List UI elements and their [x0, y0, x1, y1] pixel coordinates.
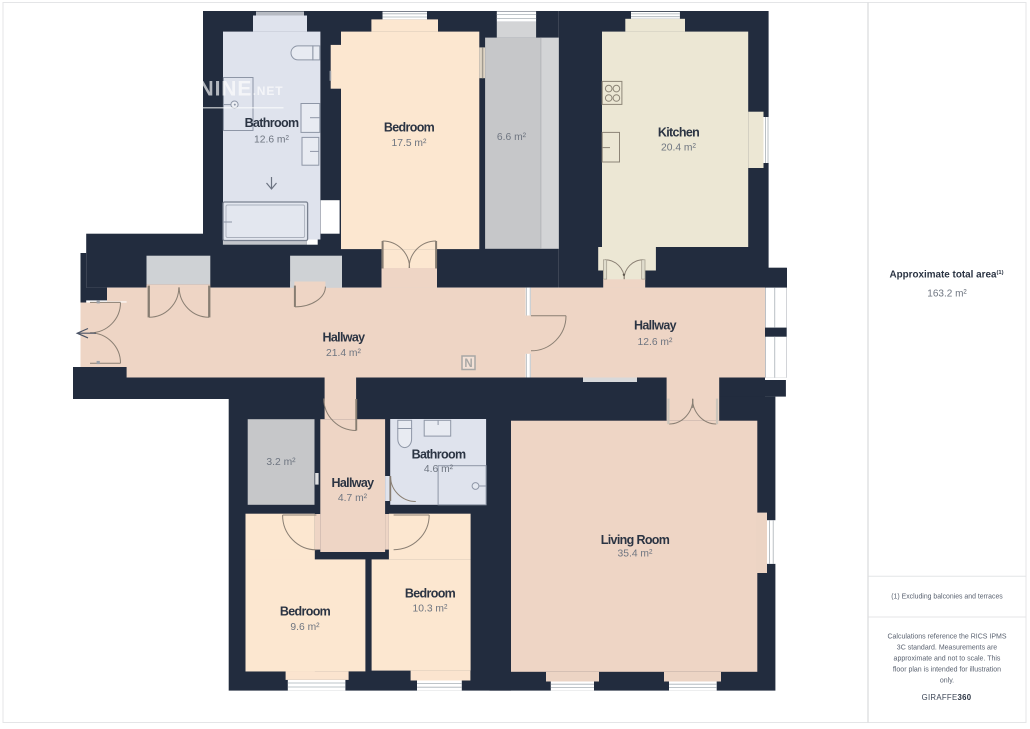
- svg-text:3.2 m²: 3.2 m²: [266, 457, 296, 468]
- svg-text:12.6 m²: 12.6 m²: [254, 135, 289, 146]
- svg-text:10.3 m²: 10.3 m²: [413, 604, 448, 615]
- svg-text:approximate and not to scale.: approximate and not to scale. This: [894, 656, 1001, 663]
- svg-text:163.2 m²: 163.2 m²: [927, 289, 967, 300]
- svg-text:3C standard. Measurements are: 3C standard. Measurements are: [897, 645, 997, 652]
- svg-text:Bedroom: Bedroom: [280, 605, 331, 619]
- svg-text:Approximate total area(1): Approximate total area(1): [889, 270, 1003, 281]
- svg-text:6.6 m²: 6.6 m²: [497, 132, 527, 143]
- svg-text:21.4 m²: 21.4 m²: [326, 348, 361, 359]
- svg-text:Bathroom: Bathroom: [412, 448, 466, 462]
- svg-text:(1) Excluding balconies and te: (1) Excluding balconies and terraces: [891, 594, 1003, 601]
- svg-text:17.5 m²: 17.5 m²: [392, 138, 427, 149]
- svg-text:20.4 m²: 20.4 m²: [661, 143, 696, 154]
- svg-text:Bedroom: Bedroom: [384, 121, 435, 135]
- svg-text:Hallway: Hallway: [634, 319, 677, 333]
- svg-text:4.7 m²: 4.7 m²: [338, 493, 368, 504]
- svg-text:9.6 m²: 9.6 m²: [290, 622, 320, 633]
- svg-text:Hallway: Hallway: [331, 476, 374, 490]
- svg-text:12.6 m²: 12.6 m²: [638, 337, 673, 348]
- svg-text:Bathroom: Bathroom: [245, 116, 299, 130]
- svg-text:Bedroom: Bedroom: [405, 587, 456, 601]
- svg-text:Hallway: Hallway: [322, 331, 365, 345]
- svg-text:Calculations reference the RIC: Calculations reference the RICS IPMS: [887, 634, 1006, 641]
- svg-text:N: N: [464, 358, 472, 370]
- svg-text:GIRAFFE360: GIRAFFE360: [922, 693, 972, 702]
- svg-text:4.6 m²: 4.6 m²: [424, 464, 454, 475]
- svg-text:only.: only.: [940, 678, 954, 685]
- svg-text:Kitchen: Kitchen: [658, 126, 699, 140]
- svg-text:35.4 m²: 35.4 m²: [618, 549, 653, 560]
- svg-text:floor plan is intended for ill: floor plan is intended for illustration: [893, 667, 1001, 674]
- svg-text:Living Room: Living Room: [601, 533, 670, 547]
